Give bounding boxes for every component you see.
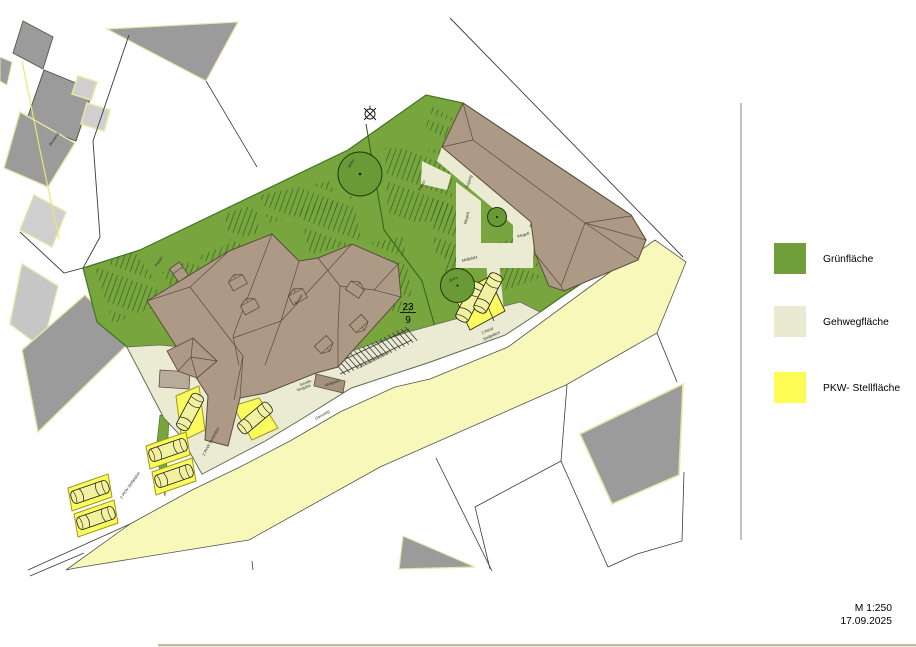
svg-text:Gehwegfläche: Gehwegfläche xyxy=(823,317,889,328)
svg-text:Grünfläche: Grünfläche xyxy=(823,254,874,265)
svg-text:23: 23 xyxy=(402,302,414,313)
svg-text:M 1:250: M 1:250 xyxy=(855,603,892,614)
svg-text:PKW- Stellfläche: PKW- Stellfläche xyxy=(823,383,900,394)
svg-text:17.09.2025: 17.09.2025 xyxy=(840,616,892,627)
svg-text:9: 9 xyxy=(405,315,411,326)
